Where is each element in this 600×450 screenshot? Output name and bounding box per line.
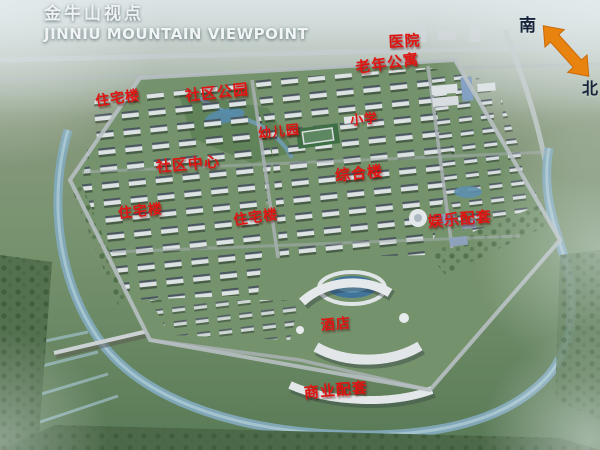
title-block: 金牛山视点 JINNIU MOUNTAIN VIEWPOINT <box>44 5 308 42</box>
compass-south-label: 南 <box>519 11 536 36</box>
map-label-primary-school: 小学 <box>349 107 379 129</box>
compass-north-label: 北 <box>582 75 598 99</box>
aerial-rendering-image <box>0 0 600 450</box>
title-chinese: 金牛山视点 <box>44 5 308 24</box>
title-english: JINNIU MOUNTAIN VIEWPOINT <box>44 26 308 43</box>
map-label-hotel: 酒店 <box>320 312 352 335</box>
aerial-masterplan-view: 金牛山视点 JINNIU MOUNTAIN VIEWPOINT 南 北 医院 老… <box>0 0 600 450</box>
